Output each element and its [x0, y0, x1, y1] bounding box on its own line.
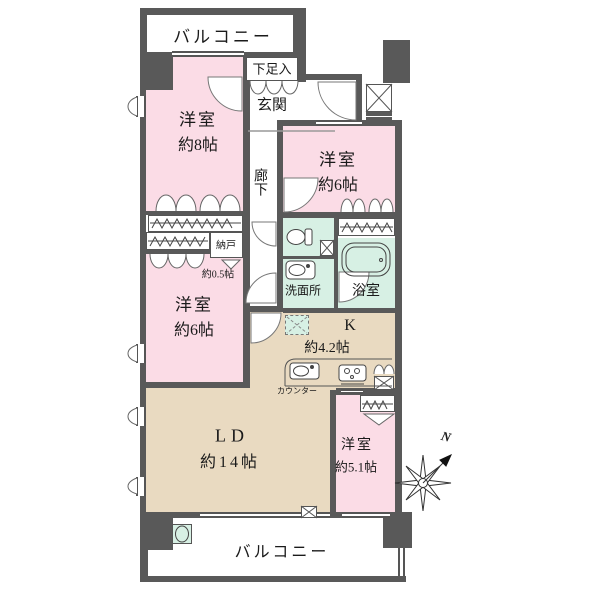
wall — [243, 306, 283, 312]
kitchen-size: 約4.2帖 — [304, 337, 350, 357]
storage-label: 納戸 — [216, 237, 236, 252]
balcony-top-label: バルコニー — [173, 23, 273, 48]
window — [316, 120, 362, 126]
wall — [140, 8, 306, 15]
entrance-label: 玄関 — [257, 94, 287, 115]
wall — [356, 74, 362, 120]
wall — [140, 52, 173, 90]
wall — [283, 256, 334, 259]
window — [172, 51, 244, 57]
door-arc-toilet — [252, 222, 276, 246]
vent-louver — [366, 112, 392, 116]
room-hall-to-ld — [250, 312, 283, 388]
washroom-label: 洗面所 — [285, 282, 321, 299]
living-dining-size: 約14帖 — [200, 448, 260, 472]
bifold-door-icon — [250, 81, 298, 94]
bathroom-label: 浴室 — [352, 280, 380, 300]
closet — [148, 215, 243, 232]
window — [136, 477, 146, 496]
living-dining-label: LD — [215, 426, 249, 447]
balcony-edge — [398, 548, 405, 576]
balcony-bottom-label: バルコニー — [235, 538, 330, 562]
vent-louver — [366, 117, 392, 120]
counter-label: カウンター — [277, 386, 317, 397]
bedroom-6-left-label: 洋室 — [175, 291, 213, 316]
closet — [146, 232, 210, 250]
wall — [140, 8, 147, 56]
corridor-label: 廊下 — [249, 168, 269, 196]
door-arc-entrance — [318, 82, 356, 120]
wall — [146, 382, 250, 388]
closet — [360, 395, 395, 412]
floor-plan: バルコニー 下足入 玄関 廊下 洋室 約8帖 洋室 約6帖 納戸 約0.5帖 洋… — [0, 0, 600, 600]
pipe-shaft-box — [320, 240, 334, 256]
wall — [283, 308, 395, 313]
shaft-box — [301, 506, 317, 518]
wall — [395, 120, 402, 518]
bedroom-5-size: 約5.1帖 — [335, 457, 377, 476]
window-sliding-door — [342, 512, 390, 518]
compass-north-label: N — [439, 428, 452, 446]
bedroom-8-label: 洋室 — [179, 106, 217, 131]
wall — [306, 74, 362, 80]
sliding-door — [341, 389, 363, 394]
bedroom-8-size: 約8帖 — [178, 131, 218, 155]
room-bedroom-8 — [146, 90, 173, 213]
refrigerator-box — [374, 376, 394, 390]
window — [136, 96, 146, 117]
closet — [338, 218, 395, 236]
wall — [243, 57, 250, 382]
door-arc-washroom — [246, 273, 276, 303]
wall — [330, 390, 336, 512]
washer-space — [285, 315, 309, 335]
window — [136, 344, 146, 363]
window — [136, 407, 146, 426]
shoe-cabinet-label: 下足入 — [252, 59, 291, 78]
wall — [140, 518, 148, 578]
bedroom-5-label: 洋室 — [341, 434, 373, 454]
wall — [140, 576, 406, 582]
bedroom-6-right-label: 洋室 — [319, 146, 357, 171]
bedroom-6-left-size: 約6帖 — [174, 316, 214, 340]
kitchen-label: K — [344, 317, 356, 335]
storage-size: 約0.5帖 — [202, 266, 235, 281]
slop-sink-box — [172, 524, 192, 544]
wall — [277, 126, 283, 312]
wall — [383, 40, 410, 83]
bedroom-6-right-size: 約6帖 — [318, 171, 358, 195]
meter-box — [366, 84, 392, 112]
